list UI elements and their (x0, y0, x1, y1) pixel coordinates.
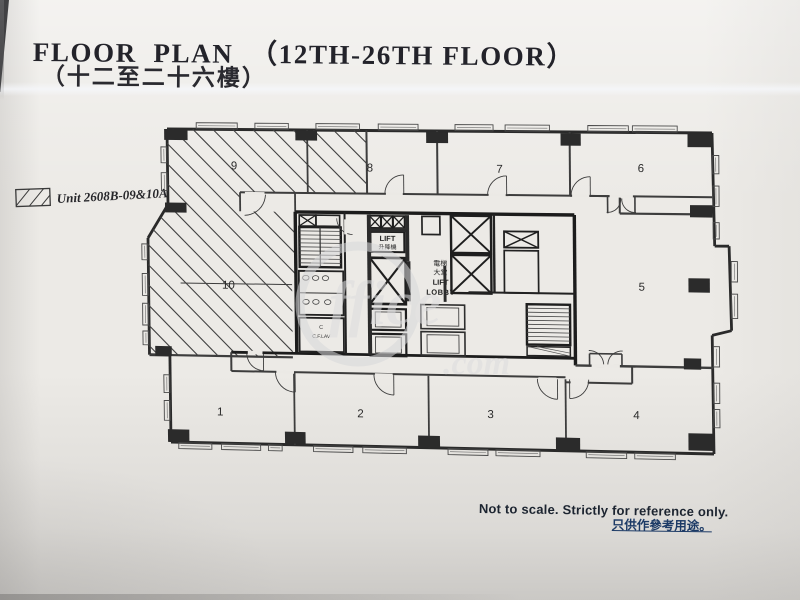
svg-text:6: 6 (638, 163, 645, 175)
svg-text:1: 1 (217, 406, 224, 418)
svg-text:2: 2 (357, 408, 364, 420)
svg-text:5: 5 (638, 282, 645, 294)
svg-text:4: 4 (633, 410, 640, 422)
svg-text:9: 9 (231, 160, 238, 172)
svg-text:ffice: ffice (329, 270, 441, 338)
svg-text:7: 7 (496, 164, 503, 176)
svg-text:.com: .com (443, 345, 510, 382)
svg-text:8: 8 (367, 163, 374, 175)
svg-text:3: 3 (487, 409, 494, 421)
svg-text:10: 10 (222, 280, 235, 292)
